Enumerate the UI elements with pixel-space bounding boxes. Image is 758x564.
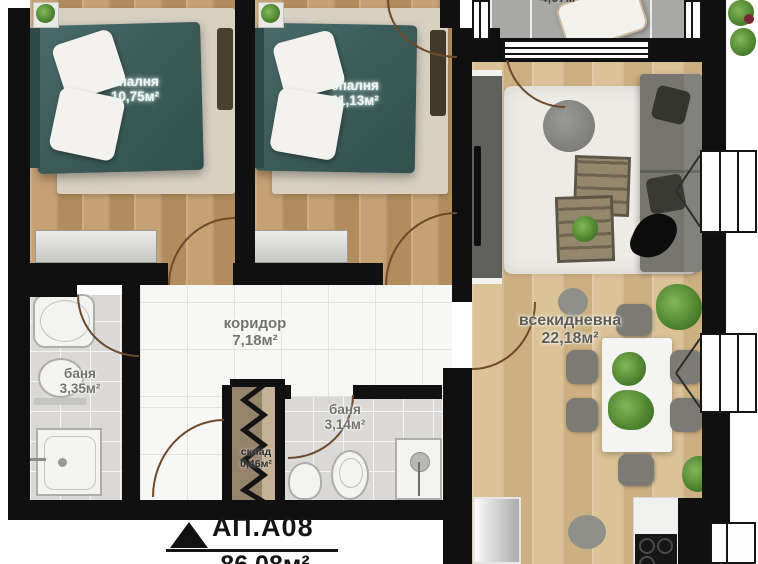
wall-bedrooms-bottom: [233, 263, 383, 285]
wall-right: [702, 233, 726, 335]
terrace-window: [503, 40, 650, 60]
room-area: 0,46м²: [222, 459, 290, 471]
sofa-pillow: [645, 173, 687, 215]
room-name: спалня: [280, 78, 430, 93]
living-plant-icon: [656, 284, 702, 330]
wall-kitchen-right: [678, 498, 704, 564]
window: [700, 333, 757, 413]
room-name: спалня: [60, 74, 210, 89]
wall-bedroom-divider: [235, 0, 255, 285]
wall-living-left-lower: [443, 368, 472, 564]
sofa-seam: [640, 170, 702, 173]
wall-bathroom2-top: [353, 385, 442, 399]
room-name: склад: [222, 447, 290, 459]
shower-drain-icon: [58, 458, 67, 467]
wall-left: [8, 8, 30, 520]
apartment-area: 86,08м²: [190, 551, 340, 564]
wall-bathroom2-left: [275, 385, 285, 502]
room-area: 3,35м²: [30, 381, 130, 396]
window: [710, 522, 756, 564]
toilet-seat: [339, 458, 363, 488]
room-area: 7,18м²: [190, 333, 320, 350]
storage-zigzag-icon: [238, 385, 272, 502]
room-name: баня: [30, 366, 130, 381]
toilet-tank: [34, 398, 86, 405]
dining-chair: [618, 454, 654, 486]
bedroom1-headboard: [30, 28, 40, 168]
bedroom2-dresser: [252, 230, 348, 263]
apartment-marker-icon: [170, 522, 208, 548]
cooktop-burner-icon: [657, 538, 673, 554]
terrace-plant-icon: [730, 28, 756, 56]
shower-faucet-icon: [28, 458, 46, 461]
bedroom1-dresser: [35, 230, 157, 263]
pouf: [568, 515, 606, 549]
bedroom2-headboard: [255, 28, 264, 168]
bathroom1-label: баня 3,35м²: [30, 366, 130, 396]
window: [700, 150, 757, 233]
fridge: [473, 497, 521, 564]
sink: [288, 462, 322, 500]
dining-chair: [566, 350, 598, 384]
bedroom2-label: спалня 11,13м²: [280, 78, 430, 108]
room-name: коридор: [190, 316, 320, 333]
bedroom1-nightstand: [217, 28, 233, 110]
shower-pipe-icon: [418, 462, 420, 496]
wall-bathroom1-top: [30, 285, 77, 297]
living-room-label: всекидневна 22,18м²: [488, 312, 652, 348]
cooktop-burner-icon: [639, 538, 655, 554]
room-name: баня: [295, 402, 395, 417]
dining-plant-icon: [608, 390, 654, 430]
storage-label: склад 0,46м²: [222, 447, 290, 471]
room-area: 11,13м²: [280, 93, 430, 108]
wall-bedrooms-bottom: [30, 263, 168, 285]
room-area: 3,14м²: [295, 417, 395, 432]
tv-cabinet-shelf: [472, 70, 502, 76]
terrace-flower-icon: [744, 14, 754, 24]
terrace-label: 4,07м²: [505, 0, 615, 6]
room-area: 22,18м²: [488, 330, 652, 348]
room-name: всекидневна: [488, 312, 652, 330]
tv-cabinet-shelf: [472, 278, 502, 284]
dining-chair: [566, 398, 598, 432]
corridor-label: коридор 7,18м²: [190, 316, 320, 350]
room-area: 4,07м²: [505, 0, 615, 6]
tv-icon: [474, 146, 481, 246]
bathroom2-label: баня 3,14м²: [295, 402, 395, 432]
shower-head-icon: [410, 452, 430, 472]
wall-right: [702, 0, 726, 152]
terrace-side-frame: [684, 0, 702, 40]
terrace-side-frame: [472, 0, 490, 40]
pouf: [543, 100, 595, 152]
floor-plan: спалня 10,75м² спалня 11,13м² коридор 7,…: [0, 0, 758, 564]
bedroom1-label: спалня 10,75м²: [60, 74, 210, 104]
apartment-id: АП.А08: [212, 512, 314, 543]
room-area: 10,75м²: [60, 89, 210, 104]
shower-basin: [44, 436, 96, 490]
